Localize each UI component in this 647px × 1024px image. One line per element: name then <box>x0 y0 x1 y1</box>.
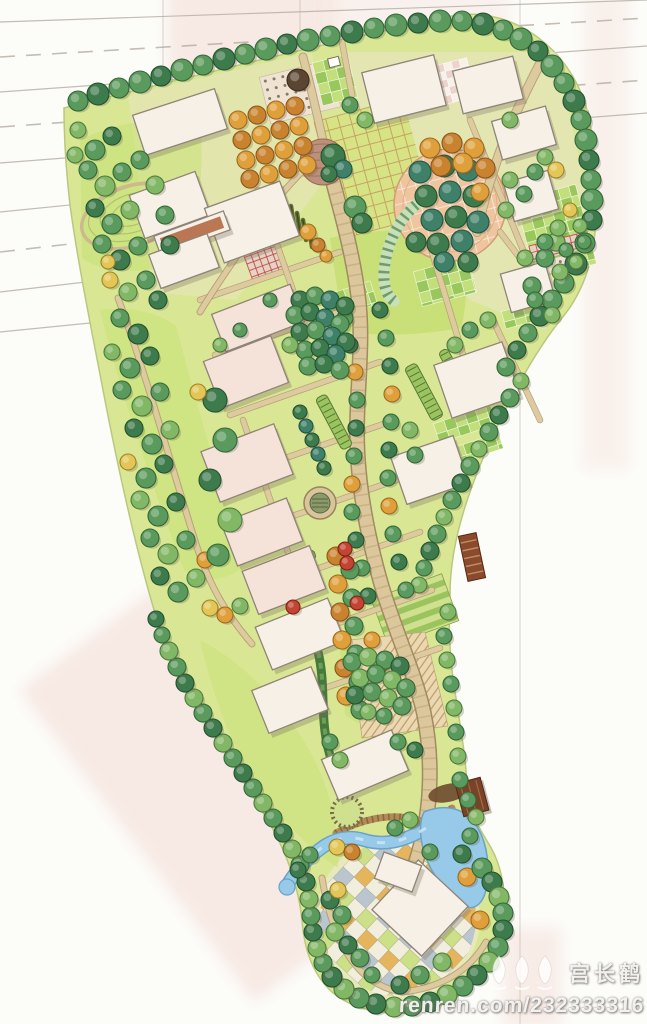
tree <box>282 337 298 353</box>
tree-highlight <box>210 547 219 556</box>
tree <box>550 220 566 236</box>
renren-logo-icon <box>489 955 557 991</box>
tree <box>420 138 440 158</box>
tree <box>67 147 83 163</box>
tree-highlight <box>132 74 141 83</box>
tree-highlight <box>98 179 106 187</box>
tree-highlight <box>289 309 297 317</box>
tree <box>307 321 325 339</box>
tree <box>402 812 418 828</box>
tree-highlight <box>546 309 553 316</box>
tree <box>290 117 308 135</box>
tree <box>351 669 369 687</box>
tree-highlight <box>140 274 148 282</box>
tree-highlight <box>464 460 472 468</box>
tree-highlight <box>474 914 482 922</box>
tree <box>448 724 464 740</box>
tree-highlight <box>289 100 297 108</box>
tree-highlight <box>529 294 536 301</box>
tree-highlight <box>424 545 432 553</box>
tree-highlight <box>290 72 299 81</box>
tree-highlight <box>529 166 536 173</box>
tree-highlight <box>423 141 431 149</box>
tree-highlight <box>297 140 305 148</box>
tree <box>429 10 451 32</box>
tree-highlight <box>116 384 124 392</box>
tree-highlight <box>579 237 585 243</box>
tree-highlight <box>382 472 389 479</box>
tree-highlight <box>539 236 546 243</box>
tree-highlight <box>202 472 211 481</box>
tree-highlight <box>131 327 139 335</box>
tree-highlight <box>154 570 162 578</box>
tree <box>315 355 333 373</box>
tree-highlight <box>135 399 143 407</box>
tree-highlight <box>561 245 567 251</box>
tree <box>508 341 526 359</box>
tree-highlight <box>344 24 353 33</box>
tree-highlight <box>492 890 500 898</box>
tree <box>467 211 489 233</box>
tree <box>498 202 514 218</box>
tree <box>329 575 347 593</box>
tree-highlight <box>154 69 162 77</box>
tree <box>434 252 454 272</box>
tree-highlight <box>434 159 442 167</box>
tree-highlight <box>294 326 302 334</box>
tree <box>559 243 573 257</box>
tree-highlight <box>304 306 312 314</box>
tree-highlight <box>151 509 159 517</box>
tree-highlight <box>445 136 453 144</box>
tree <box>422 844 438 860</box>
tree <box>213 48 235 70</box>
tree-highlight <box>240 154 248 162</box>
tree <box>101 255 115 269</box>
tree <box>151 66 171 86</box>
tree <box>161 236 179 254</box>
tree <box>338 542 352 556</box>
tree <box>490 406 508 424</box>
tree-highlight <box>347 199 356 208</box>
tree-highlight <box>348 620 356 628</box>
tree <box>385 526 401 542</box>
tree-highlight <box>396 700 404 708</box>
tree-highlight <box>552 222 559 229</box>
tree-highlight <box>448 702 455 709</box>
tree-highlight <box>346 846 353 853</box>
tree-highlight <box>295 407 301 413</box>
tree-highlight <box>334 606 342 614</box>
tree-highlight <box>346 478 353 485</box>
tree-highlight <box>323 168 330 175</box>
tree-highlight <box>354 672 362 680</box>
tree-highlight <box>424 846 431 853</box>
watermark: 宫长鹤 renren.com/232333316 <box>399 955 644 1018</box>
tree-highlight <box>313 240 319 246</box>
tree-highlight <box>578 132 587 141</box>
tree-highlight <box>235 325 241 331</box>
tree-highlight <box>106 346 113 353</box>
tree-highlight <box>430 236 439 245</box>
tree <box>286 97 304 115</box>
tree-highlight <box>174 62 183 71</box>
tree <box>364 967 380 983</box>
tree-highlight <box>159 209 167 217</box>
tree-highlight <box>274 124 282 132</box>
tree-highlight <box>584 173 592 181</box>
tree <box>340 556 354 570</box>
tree-highlight <box>326 330 334 338</box>
tree-highlight <box>171 585 179 593</box>
tree-highlight <box>531 44 539 52</box>
tree <box>271 121 289 139</box>
tree-highlight <box>329 926 337 934</box>
tree-highlight <box>314 342 322 350</box>
tree-highlight <box>533 309 541 317</box>
tree <box>352 213 372 233</box>
tree-highlight <box>585 213 593 221</box>
tree-highlight <box>88 143 96 151</box>
site-plan-page: 宫长鹤 renren.com/232333316 <box>0 0 647 1024</box>
road-line <box>0 322 100 332</box>
tree-highlight <box>584 192 593 201</box>
tree-highlight <box>150 613 157 620</box>
tree-highlight <box>575 221 581 227</box>
tree-highlight <box>324 736 331 743</box>
tree <box>109 78 129 98</box>
tree-highlight <box>404 814 411 821</box>
tree-highlight <box>386 674 394 682</box>
tree-highlight <box>219 609 226 616</box>
tree <box>462 828 478 844</box>
tree-highlight <box>331 841 338 848</box>
tree-highlight <box>89 202 97 210</box>
tree-highlight <box>164 239 172 247</box>
tree-highlight <box>349 689 357 697</box>
tree-highlight <box>236 134 244 142</box>
tree-highlight <box>265 295 271 301</box>
tree <box>120 358 140 378</box>
tree-highlight <box>362 651 370 659</box>
tree-highlight <box>351 394 358 401</box>
tree <box>343 653 361 671</box>
tree <box>275 141 293 159</box>
tree <box>113 381 131 399</box>
tree-highlight <box>496 23 504 31</box>
tree <box>421 542 439 560</box>
tree-highlight <box>386 388 393 395</box>
tree-highlight <box>171 661 179 669</box>
tree-highlight <box>393 556 400 563</box>
tree-highlight <box>251 109 259 117</box>
tree-highlight <box>383 444 390 451</box>
tree <box>260 165 278 183</box>
tree <box>384 386 400 402</box>
tree-highlight <box>144 532 152 540</box>
tree-highlight <box>330 348 338 356</box>
tree <box>256 146 274 164</box>
tree-highlight <box>282 163 290 171</box>
tree-highlight <box>387 528 394 535</box>
tree-highlight <box>431 528 439 536</box>
tree-highlight <box>504 174 511 181</box>
tree <box>102 272 118 288</box>
tree <box>141 347 159 365</box>
tree-highlight <box>337 163 345 171</box>
tree <box>302 907 320 925</box>
tree <box>480 312 496 328</box>
tree-highlight <box>204 602 211 609</box>
tree <box>341 21 363 43</box>
tree <box>333 906 351 924</box>
tree <box>544 307 560 323</box>
tree <box>461 457 479 475</box>
tree <box>397 679 415 697</box>
tree-highlight <box>475 861 483 869</box>
tree <box>167 493 185 511</box>
tree <box>519 324 537 342</box>
tree-highlight <box>163 645 171 653</box>
tree-highlight <box>342 939 350 947</box>
tree-highlight <box>483 426 491 434</box>
tree-highlight <box>485 875 493 883</box>
tree <box>146 176 164 194</box>
tree <box>442 133 462 153</box>
tree <box>381 498 397 514</box>
tree <box>575 129 597 151</box>
tree-highlight <box>232 114 240 122</box>
tree <box>436 628 452 644</box>
tree <box>390 734 406 750</box>
tree <box>372 302 388 318</box>
tree <box>160 642 178 660</box>
tree <box>436 509 452 525</box>
tree-highlight <box>362 590 369 597</box>
tree-highlight <box>500 361 508 369</box>
tree-highlight <box>445 678 452 685</box>
tree-highlight <box>293 120 301 128</box>
tree <box>579 150 599 170</box>
tree-highlight <box>134 494 142 502</box>
tree <box>293 405 307 419</box>
tree <box>536 249 554 267</box>
tree <box>232 598 248 614</box>
tree <box>151 383 169 401</box>
tree <box>120 454 136 470</box>
tree <box>393 697 411 715</box>
tree <box>364 18 384 38</box>
tree <box>475 158 495 178</box>
tree <box>501 389 519 407</box>
tree <box>571 110 591 130</box>
tree-highlight <box>441 654 448 661</box>
tree-highlight <box>379 654 387 662</box>
tree-highlight <box>438 630 445 637</box>
tree-highlight <box>156 629 163 636</box>
tree-highlight <box>139 471 147 479</box>
tree <box>380 470 396 486</box>
tree <box>263 293 277 307</box>
tree-highlight <box>438 511 445 518</box>
tree-highlight <box>134 154 142 162</box>
tree <box>385 14 407 36</box>
tree <box>131 491 149 509</box>
tree <box>581 170 601 190</box>
tree-highlight <box>124 204 132 212</box>
tree <box>428 525 446 543</box>
tree <box>299 357 317 375</box>
tree <box>317 461 331 475</box>
tree-highlight <box>522 327 530 335</box>
tree-highlight <box>504 392 512 400</box>
tree <box>235 44 255 64</box>
tree <box>132 396 152 416</box>
tree-highlight <box>545 293 553 301</box>
tree-highlight <box>106 130 114 138</box>
tree <box>344 476 360 492</box>
tree-highlight <box>270 104 278 112</box>
tree-highlight <box>300 32 309 41</box>
tree-highlight <box>400 584 407 591</box>
tree <box>121 201 139 219</box>
tree-highlight <box>348 450 355 457</box>
tree <box>502 112 518 128</box>
tree <box>460 792 476 808</box>
tree <box>416 560 432 576</box>
tree <box>237 151 255 169</box>
tree <box>330 882 346 898</box>
tree-highlight <box>411 16 419 24</box>
tree-highlight <box>170 496 178 504</box>
tree <box>440 604 456 620</box>
tree <box>158 544 178 564</box>
tree <box>294 137 312 155</box>
tree-highlight <box>461 255 469 263</box>
tree <box>141 529 159 547</box>
tree-highlight <box>216 51 225 60</box>
tree-highlight <box>362 706 369 713</box>
tree-highlight <box>446 494 454 502</box>
tree-highlight <box>354 952 362 960</box>
tree <box>302 847 318 863</box>
tree-highlight <box>482 314 489 321</box>
tree <box>344 504 360 520</box>
tree-highlight <box>334 754 341 761</box>
tree-highlight <box>474 186 482 194</box>
tree-highlight <box>571 257 577 263</box>
tree <box>148 611 164 627</box>
tree-highlight <box>418 562 425 569</box>
tree-highlight <box>332 578 340 586</box>
tree-highlight <box>286 843 294 851</box>
site-plan-canvas <box>0 0 647 1024</box>
tree <box>287 69 309 91</box>
tree <box>497 358 515 376</box>
tree-highlight <box>380 332 387 339</box>
tree-highlight <box>311 942 319 950</box>
tree <box>300 890 318 908</box>
tree <box>137 271 155 289</box>
tree-highlight <box>456 156 464 164</box>
tree <box>79 161 97 179</box>
tree-highlight <box>513 31 522 40</box>
tree-highlight <box>374 304 381 311</box>
tree <box>357 112 373 128</box>
tree <box>311 339 329 357</box>
tree <box>552 264 568 280</box>
tree-highlight <box>199 554 206 561</box>
tree <box>516 186 532 202</box>
tree <box>431 156 451 176</box>
tree <box>129 237 147 255</box>
tree <box>407 742 423 758</box>
tree <box>217 607 233 623</box>
tree-highlight <box>518 188 525 195</box>
tree <box>248 106 266 124</box>
tree-highlight <box>387 1000 395 1008</box>
tree-highlight <box>491 940 499 948</box>
tree-highlight <box>313 449 319 455</box>
end-pool <box>279 879 295 895</box>
tree <box>128 324 148 344</box>
tree-highlight <box>71 94 79 102</box>
tree-highlight <box>215 340 221 346</box>
tree <box>342 97 358 113</box>
tree-highlight <box>263 168 271 176</box>
tree <box>537 234 553 250</box>
tree <box>462 322 478 338</box>
tree-highlight <box>475 16 484 25</box>
tree <box>332 752 348 768</box>
tree <box>517 250 533 266</box>
tree-highlight <box>450 726 457 733</box>
tree-highlight <box>284 339 291 346</box>
tree <box>398 582 414 598</box>
tree-highlight <box>496 906 504 914</box>
tree <box>458 252 478 272</box>
tree <box>445 206 467 228</box>
tree-highlight <box>409 449 416 456</box>
tree-highlight <box>319 463 325 469</box>
tree-highlight <box>412 164 421 173</box>
tree <box>382 358 398 374</box>
tree <box>85 140 105 160</box>
tree-highlight <box>145 437 153 445</box>
tree-highlight <box>278 144 286 152</box>
tree <box>421 209 443 231</box>
tree-highlight <box>455 14 463 22</box>
tree-highlight <box>104 274 111 281</box>
tree-highlight <box>152 294 160 302</box>
tree-highlight <box>378 710 385 717</box>
tree-highlight <box>324 147 334 157</box>
tree-highlight <box>340 336 348 344</box>
tree-highlight <box>346 656 354 664</box>
tree-highlight <box>352 598 358 604</box>
tree-highlight <box>470 214 479 223</box>
tree-highlight <box>544 58 553 67</box>
tree <box>300 224 316 240</box>
tree-highlight <box>332 884 339 891</box>
tree-highlight <box>179 677 187 685</box>
tree <box>218 508 242 532</box>
tree-highlight <box>557 76 565 84</box>
tree-highlight <box>144 350 152 358</box>
tree-highlight <box>418 188 427 197</box>
tree <box>569 255 583 269</box>
tree-highlight <box>258 41 267 50</box>
